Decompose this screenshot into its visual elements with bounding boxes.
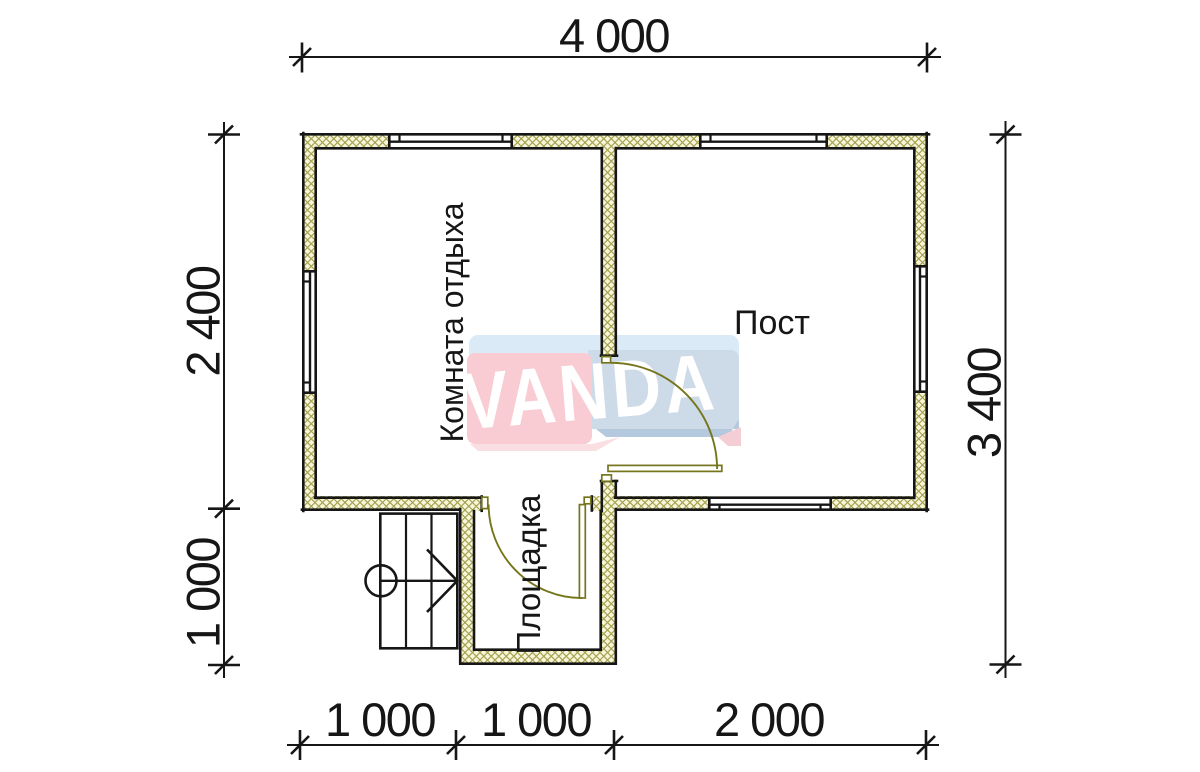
svg-text:Комната отдыха: Комната отдыха <box>434 202 470 442</box>
svg-text:1 000: 1 000 <box>177 538 230 648</box>
svg-text:Пост: Пост <box>734 304 810 342</box>
svg-text:1 000: 1 000 <box>481 693 591 746</box>
svg-text:1 000: 1 000 <box>325 693 435 746</box>
svg-text:3 400: 3 400 <box>958 348 1011 458</box>
svg-text:2 000: 2 000 <box>714 693 824 746</box>
svg-text:4 000: 4 000 <box>559 9 669 62</box>
svg-text:Площадка: Площадка <box>510 494 547 655</box>
svg-text:2 400: 2 400 <box>177 266 230 376</box>
